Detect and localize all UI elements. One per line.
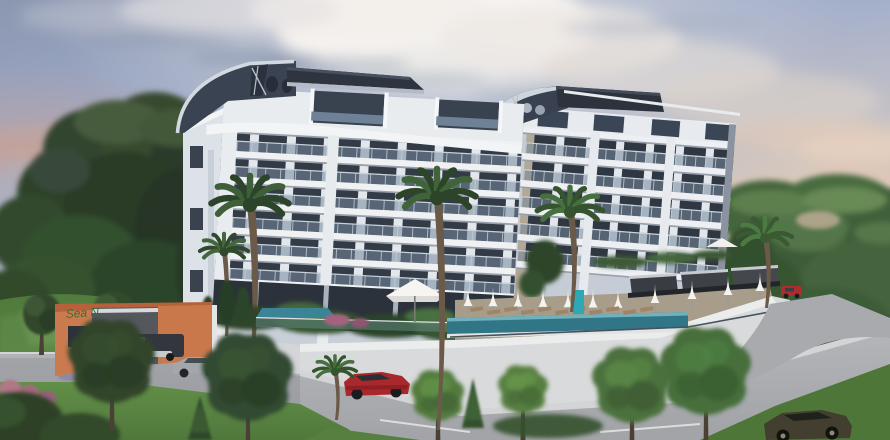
svg-text:Sea N: Sea N [65,305,100,321]
